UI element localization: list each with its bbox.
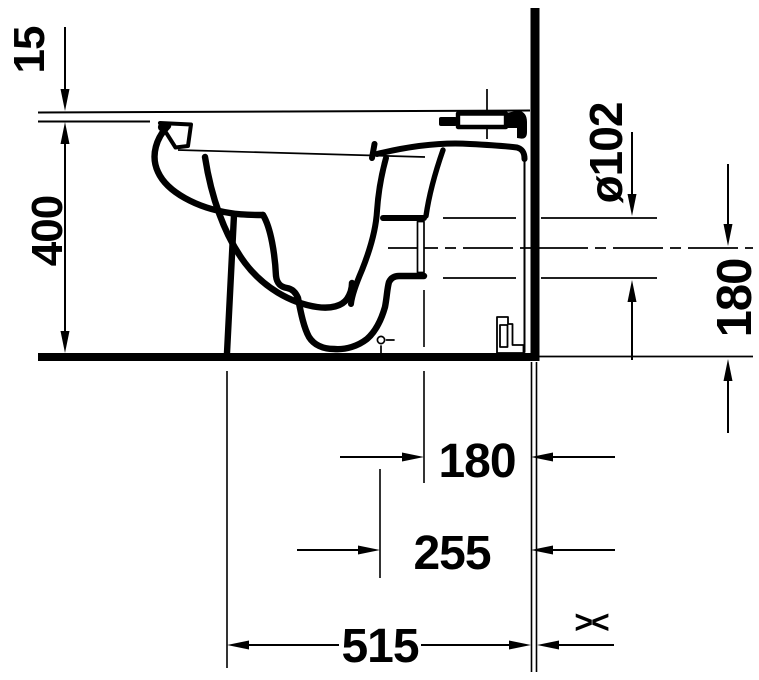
dimension-labels: 15 400 ø102 180 180 255 515 >< bbox=[5, 26, 759, 673]
fixing-bracket bbox=[497, 317, 524, 353]
label-outlet-to-wall: 180 bbox=[438, 435, 515, 488]
fixing-bracket-slot bbox=[500, 325, 508, 347]
seat-hinge-lug bbox=[372, 144, 375, 158]
seat-top-reference-line bbox=[38, 111, 530, 113]
structure bbox=[38, 8, 753, 672]
drawing-canvas: 15 400 ø102 180 180 255 515 >< bbox=[0, 0, 759, 680]
outlet-end-face bbox=[418, 222, 425, 273]
label-rim-height: 400 bbox=[23, 196, 72, 266]
dim-515-arrow-left bbox=[227, 641, 249, 650]
label-fixing-to-wall: 255 bbox=[413, 527, 490, 580]
seat-hinge-block-middle bbox=[458, 114, 506, 128]
dim-variable-arrow-left bbox=[537, 641, 559, 650]
floor-section bbox=[38, 353, 539, 361]
label-outlet-diameter: ø102 bbox=[580, 103, 632, 204]
toilet-profile bbox=[155, 111, 527, 354]
dim-180r-arrow-down bbox=[724, 224, 733, 246]
technical-drawing-page: 15 400 ø102 180 180 255 515 >< bbox=[0, 0, 759, 680]
dim-515-arrow-right bbox=[509, 641, 531, 650]
reference-lines bbox=[38, 89, 753, 278]
trap-back-wall bbox=[351, 158, 386, 304]
dim-180b-arrow-right bbox=[402, 453, 424, 462]
fixing-hole-marker bbox=[377, 336, 394, 353]
wall-section bbox=[531, 8, 540, 361]
label-outlet-axis-height: 180 bbox=[708, 259, 759, 338]
seat-hinge-block-right bbox=[506, 111, 527, 139]
bowl-underside bbox=[263, 215, 424, 349]
dim-400-arrow-down bbox=[61, 331, 70, 353]
label-seat-height: 15 bbox=[5, 26, 54, 73]
dim-180r-arrow-up bbox=[724, 359, 733, 381]
seat-hinge-block-left bbox=[439, 117, 457, 126]
fixing-hole-circle bbox=[377, 336, 384, 343]
dim-255-arrow-left bbox=[531, 546, 553, 555]
dim-180b-arrow-left bbox=[531, 453, 553, 462]
dim-255-arrow-right bbox=[358, 546, 380, 555]
label-variable-symbol: >< bbox=[574, 604, 609, 640]
dim-400-arrow-up bbox=[61, 122, 70, 144]
back-inner-contour bbox=[426, 150, 443, 216]
label-depth-to-wall: 515 bbox=[341, 620, 418, 673]
dim-dia-arrow-up bbox=[628, 280, 637, 302]
dim-15-arrow-down bbox=[61, 89, 70, 111]
